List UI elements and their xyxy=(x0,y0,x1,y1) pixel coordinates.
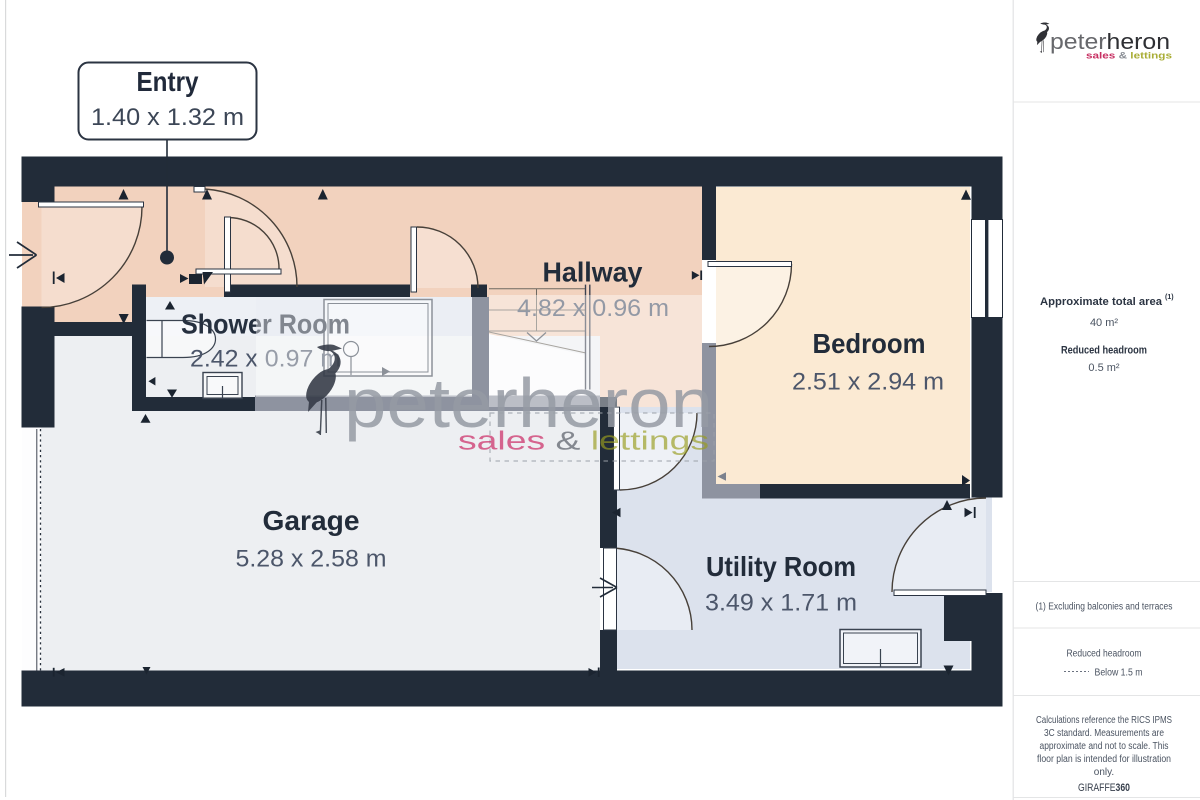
svg-text:sales & lettings: sales & lettings xyxy=(458,428,709,456)
svg-text:GIRAFFE360: GIRAFFE360 xyxy=(1078,782,1130,794)
svg-text:3.49 x 1.71 m: 3.49 x 1.71 m xyxy=(705,590,857,617)
svg-text:Garage: Garage xyxy=(263,505,360,536)
svg-text:Hallway: Hallway xyxy=(543,257,644,288)
svg-text:floor plan is intended for ill: floor plan is intended for illustration xyxy=(1037,754,1171,765)
svg-text:Calculations reference the RIC: Calculations reference the RICS IPMS xyxy=(1036,715,1172,726)
svg-text:Below 1.5 m: Below 1.5 m xyxy=(1095,668,1143,679)
svg-text:Utility Room: Utility Room xyxy=(706,551,856,582)
svg-text:1.40 x 1.32 m: 1.40 x 1.32 m xyxy=(91,104,244,131)
svg-text:sales & lettings: sales & lettings xyxy=(1086,51,1172,61)
svg-text:0.5 m²: 0.5 m² xyxy=(1088,362,1120,374)
svg-text:5.28 x 2.58 m: 5.28 x 2.58 m xyxy=(236,546,387,573)
svg-text:Reduced headroom: Reduced headroom xyxy=(1061,345,1147,357)
svg-text:(1) Excluding balconies and te: (1) Excluding balconies and terraces xyxy=(1036,602,1173,613)
svg-text:3C standard. Measurements are: 3C standard. Measurements are xyxy=(1044,728,1164,739)
svg-text:Approximate total area: Approximate total area xyxy=(1040,296,1163,308)
svg-text:2.51 x 2.94 m: 2.51 x 2.94 m xyxy=(792,369,944,396)
svg-text:only.: only. xyxy=(1094,767,1114,778)
svg-text:40 m²: 40 m² xyxy=(1090,317,1118,329)
svg-text:Bedroom: Bedroom xyxy=(813,328,926,359)
svg-text:(1): (1) xyxy=(1165,294,1174,301)
svg-text:approximate and not to scale.: approximate and not to scale. This xyxy=(1040,741,1169,752)
svg-text:Entry: Entry xyxy=(137,66,199,97)
svg-text:Reduced headroom: Reduced headroom xyxy=(1067,649,1142,660)
